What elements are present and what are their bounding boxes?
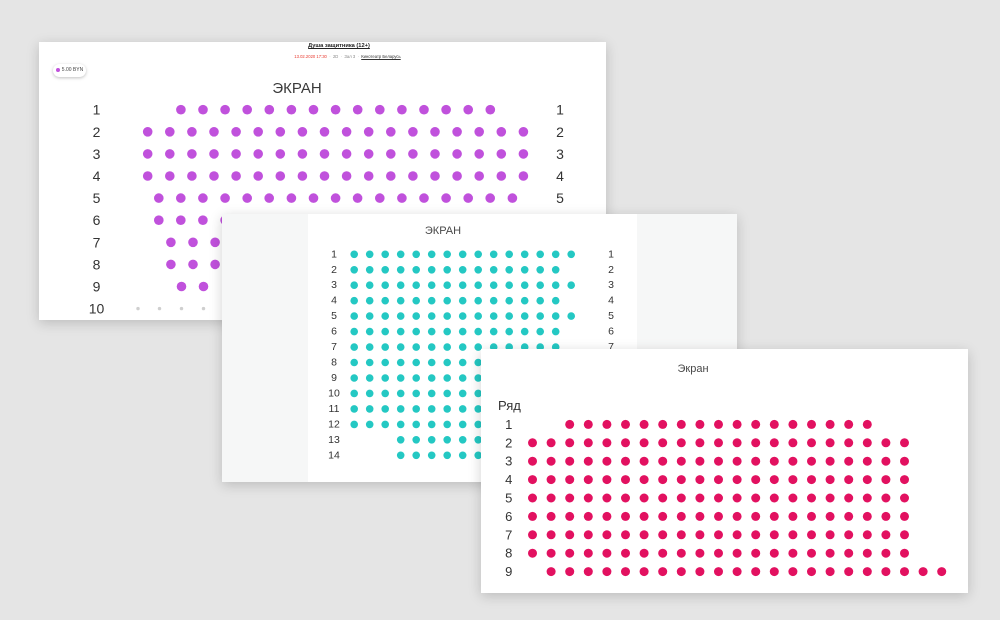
svg-text:4: 4 bbox=[505, 472, 512, 487]
svg-text:2: 2 bbox=[331, 264, 337, 276]
svg-text:1: 1 bbox=[93, 102, 101, 118]
svg-text:4: 4 bbox=[93, 168, 101, 184]
svg-text:4: 4 bbox=[331, 295, 337, 307]
svg-text:9: 9 bbox=[331, 372, 337, 384]
svg-text:5: 5 bbox=[608, 310, 614, 322]
svg-text:6: 6 bbox=[93, 212, 101, 228]
svg-text:7: 7 bbox=[505, 527, 512, 542]
svg-text:7: 7 bbox=[331, 341, 337, 353]
svg-text:9: 9 bbox=[505, 564, 512, 579]
svg-text:5: 5 bbox=[505, 490, 512, 505]
svg-text:10: 10 bbox=[328, 387, 340, 399]
svg-text:6: 6 bbox=[505, 508, 512, 523]
svg-text:6: 6 bbox=[608, 326, 614, 338]
svg-text:3: 3 bbox=[331, 279, 337, 291]
svg-text:5: 5 bbox=[93, 190, 101, 206]
svg-text:1: 1 bbox=[556, 102, 564, 118]
svg-text:3: 3 bbox=[505, 453, 512, 468]
svg-text:1: 1 bbox=[505, 416, 512, 431]
svg-text:2: 2 bbox=[505, 435, 512, 450]
svg-text:7: 7 bbox=[93, 234, 101, 250]
svg-text:5: 5 bbox=[331, 310, 337, 322]
svg-text:4: 4 bbox=[556, 168, 564, 184]
svg-text:2: 2 bbox=[556, 124, 564, 140]
svg-text:8: 8 bbox=[331, 357, 337, 369]
svg-text:6: 6 bbox=[331, 326, 337, 338]
svg-text:2: 2 bbox=[93, 124, 101, 140]
svg-text:12: 12 bbox=[328, 418, 340, 430]
svg-text:5: 5 bbox=[556, 190, 564, 206]
svg-text:3: 3 bbox=[556, 146, 564, 162]
svg-text:9: 9 bbox=[93, 279, 101, 295]
svg-text:1: 1 bbox=[608, 248, 614, 260]
svg-text:10: 10 bbox=[89, 301, 105, 317]
svg-text:8: 8 bbox=[505, 545, 512, 560]
svg-text:8: 8 bbox=[93, 256, 101, 272]
svg-text:3: 3 bbox=[93, 146, 101, 162]
svg-text:13: 13 bbox=[328, 434, 340, 446]
svg-text:1: 1 bbox=[331, 248, 337, 260]
svg-text:3: 3 bbox=[608, 279, 614, 291]
svg-text:2: 2 bbox=[608, 264, 614, 276]
svg-text:4: 4 bbox=[608, 295, 614, 307]
svg-text:14: 14 bbox=[328, 449, 340, 461]
svg-text:11: 11 bbox=[329, 403, 340, 415]
